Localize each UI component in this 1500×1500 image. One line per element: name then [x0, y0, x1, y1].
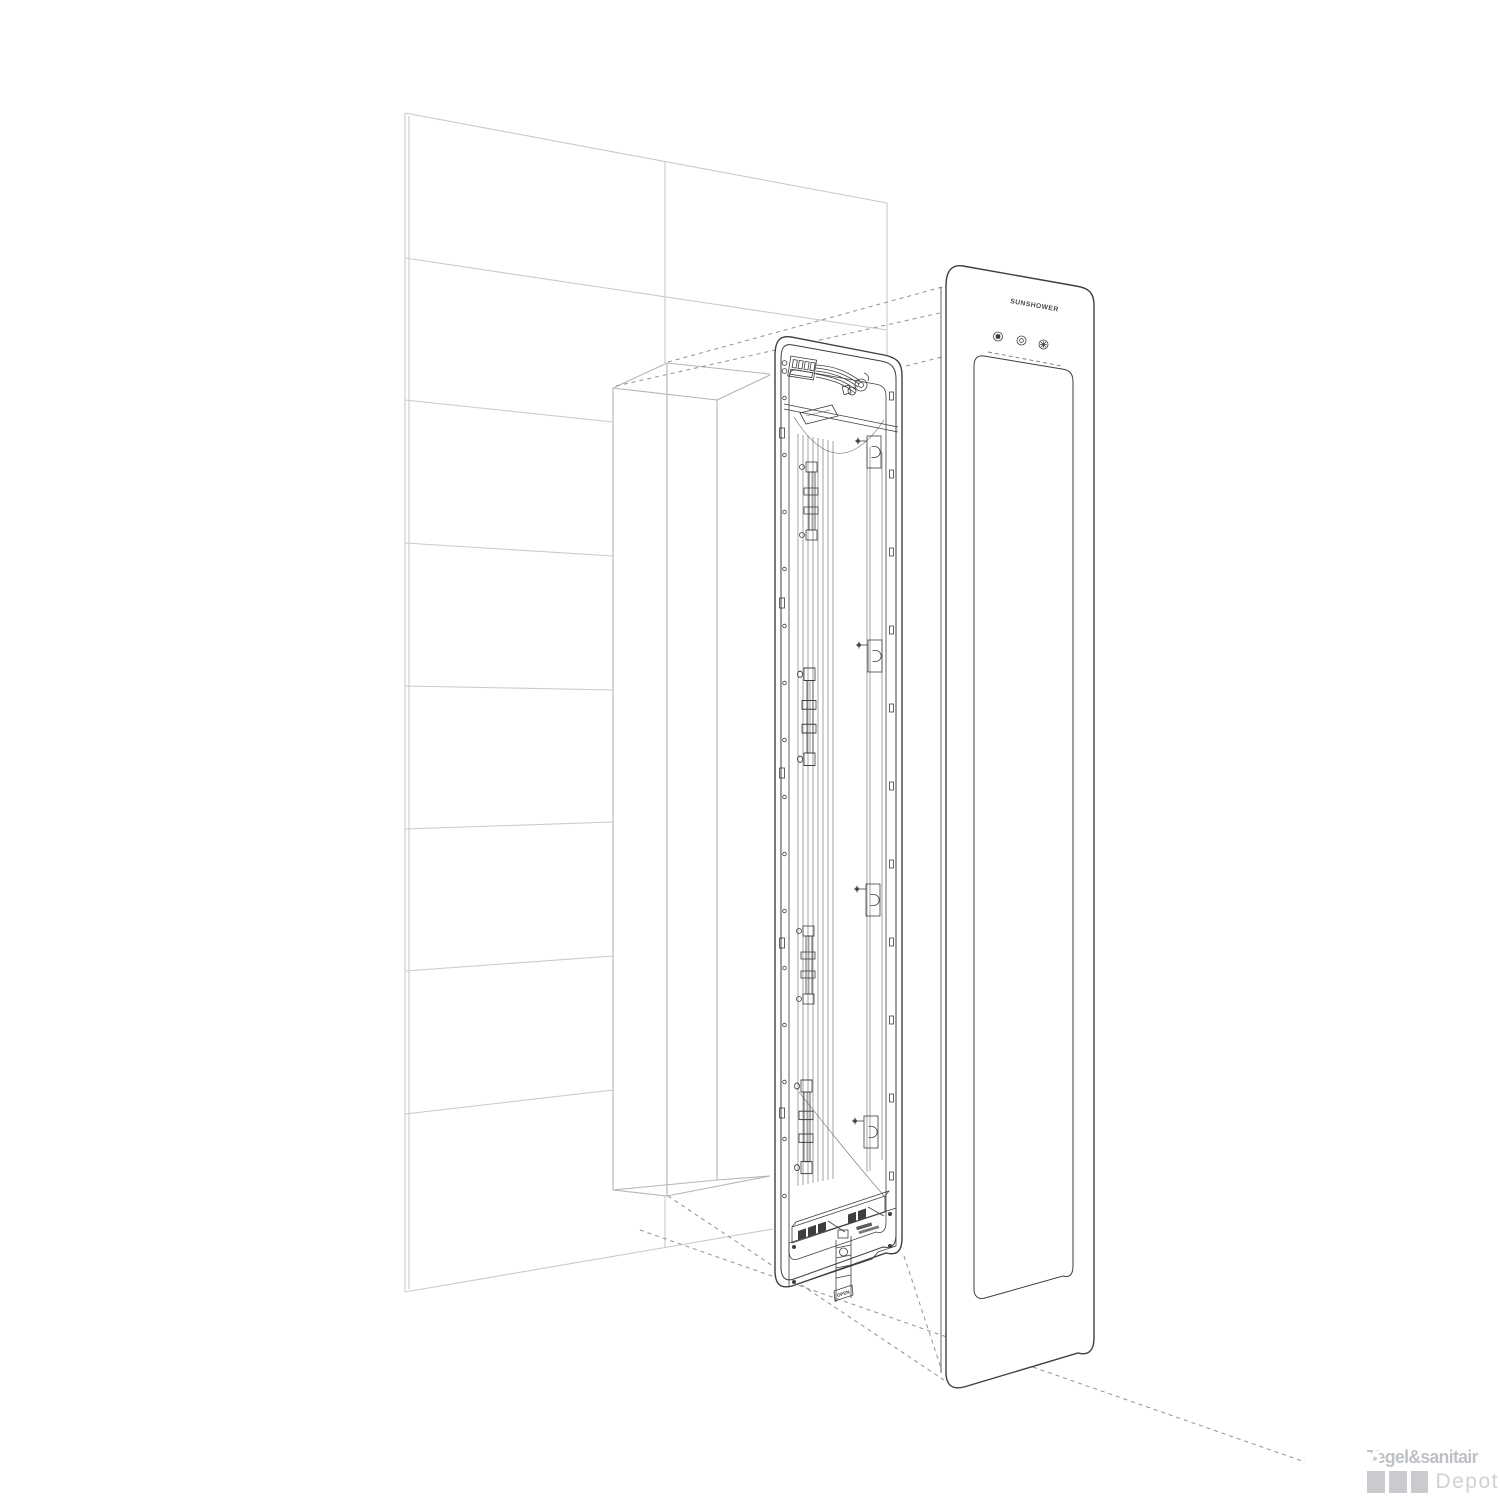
- exploded-view-page: OPEN SUNSHOWER Tegel&sanitair: [0, 0, 1500, 1500]
- wall-recess-box: [613, 363, 770, 1196]
- store-watermark: Tegel&sanitair Depot: [1367, 1447, 1499, 1493]
- square-display-icon: [996, 334, 1000, 338]
- chassis-outer-frame: [775, 337, 902, 1287]
- watermark-depot-text: Depot: [1435, 1471, 1499, 1493]
- watermark-tile-2: [1389, 1471, 1407, 1493]
- watermark-tile-3: [1411, 1471, 1429, 1493]
- watermark-tile-1: [1367, 1471, 1385, 1493]
- panel-outline: [946, 266, 1094, 1388]
- exploded-view-diagram: OPEN SUNSHOWER: [0, 0, 1500, 1500]
- watermark-brand-text: Tegel&sanitair: [1367, 1447, 1495, 1468]
- heater-chassis: OPEN: [775, 337, 902, 1302]
- droplet-icon: [1367, 1447, 1383, 1465]
- tile-joint-line: [405, 258, 887, 330]
- panel-button-3: [1039, 340, 1048, 349]
- sun-icon: [1040, 341, 1047, 348]
- front-panel: SUNSHOWER: [941, 266, 1094, 1388]
- projection-lines-front: [904, 357, 942, 1368]
